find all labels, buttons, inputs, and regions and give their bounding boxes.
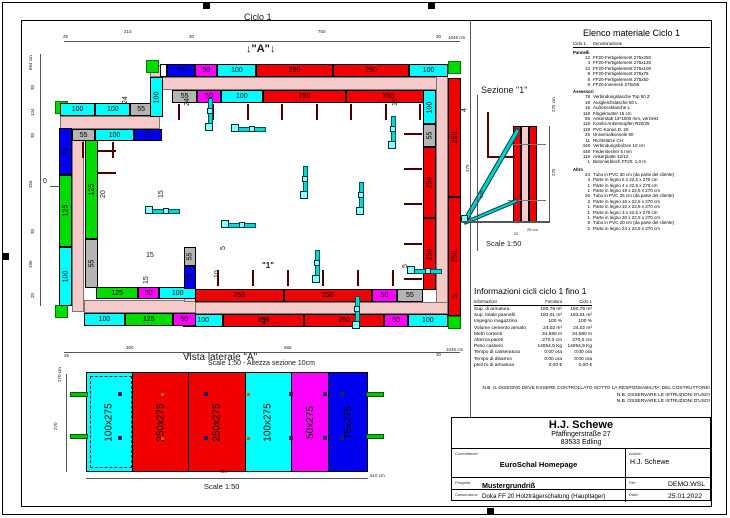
panel-size-label: 125 — [111, 290, 123, 297]
tie-rod-icon — [287, 270, 289, 286]
item-qty: 8 — [573, 82, 590, 87]
wall-band — [60, 116, 160, 129]
formwork-wall: 5575 — [184, 247, 196, 289]
casseratura-value: Doka FF 20 Holzträgerschalung (Hauptlage… — [482, 493, 605, 500]
tie-rod-icon — [247, 104, 249, 120]
panel-size-label: 250 — [365, 67, 377, 74]
prop-joint-icon — [239, 222, 245, 228]
panel-size-label: 50 — [180, 316, 188, 323]
joint-bolt-icon — [340, 392, 344, 396]
panel-100: 100 — [59, 247, 72, 306]
panel-50: 50 — [138, 287, 159, 299]
item-name: Parte in legno 24 x 22,5 x 270 cm — [590, 226, 660, 231]
notes: N.B. IL DISEGNO DEVE ESSERE CONTROLLATO … — [380, 386, 710, 406]
side-panel: 50x275 — [292, 373, 329, 471]
panel-250: 250 — [346, 90, 430, 103]
progetto-cell: Progetto: Mustergrundriß — [452, 478, 626, 489]
tie-rod-icon — [385, 104, 387, 120]
panel-size-label: 55 — [186, 253, 193, 261]
dimension-line — [66, 374, 67, 472]
print-mark — [487, 508, 494, 514]
joint-bolt-icon — [118, 436, 122, 440]
side-panel: 100x275 — [87, 373, 133, 471]
info-label: prezzo di armatura — [474, 363, 526, 369]
section-waling — [508, 144, 546, 145]
prop-joint-icon — [314, 260, 320, 266]
print-mark — [428, 3, 435, 9]
progetto-value: Mustergrundriß — [482, 481, 535, 490]
panel-125: 125 — [59, 175, 72, 247]
annotation-label: 22 — [514, 232, 518, 236]
committente-label: Committente: — [455, 451, 479, 456]
tie-rod-icon — [82, 142, 84, 158]
panel-250: 250 — [448, 197, 461, 316]
joint-bolt-icon — [204, 436, 208, 440]
formwork-wall: 10012550 — [84, 313, 196, 326]
panel-size-label: 100 — [99, 316, 111, 323]
panel-size-label: 250 — [289, 67, 301, 74]
prop-head-icon — [145, 206, 153, 214]
prop-head-icon — [205, 123, 213, 131]
prop-head-icon — [356, 207, 364, 215]
annotation-label: 30 — [189, 35, 194, 40]
dimension-line — [40, 54, 41, 306]
annotation-label: 24 — [184, 98, 191, 106]
annotation-label: 610 — [220, 470, 228, 475]
material-item: 1Betonierblech FF20, 1,0 m — [573, 159, 710, 164]
dimension-line — [64, 352, 460, 353]
annotation-label: 25 cm — [527, 228, 538, 232]
info-ciclo: 0,00 € — [562, 363, 592, 369]
info-row: prezzo di armatura0,00 €0,00 € — [474, 363, 592, 369]
tie-rod-icon — [404, 243, 422, 245]
corner-panel — [146, 60, 159, 73]
annotation-label: 30 — [31, 85, 36, 90]
dimension-line — [86, 478, 368, 479]
annotation-label: 30 — [436, 35, 441, 40]
panel-55: 55 — [184, 247, 196, 266]
panel-250: 250 — [256, 64, 332, 77]
panel-size-label: 250 — [451, 132, 458, 144]
panel-size-label: 75 — [144, 132, 152, 139]
file-label: File: — [629, 480, 637, 485]
panel-250: 250 — [333, 64, 409, 77]
committente-value: EuroSchal Homepage — [452, 460, 625, 469]
panel-size-label: 125 — [88, 184, 95, 196]
item-qty: 1 — [573, 159, 590, 164]
data-cell: Data: 25.01.2022 — [626, 490, 710, 502]
panel-75: 75 — [167, 64, 196, 77]
formwork-wall: 10055250250 — [423, 90, 436, 290]
annotation-label: 30 — [31, 133, 36, 138]
panel-size-label: 55 — [406, 292, 414, 299]
col-informazioni: Informazioni — [474, 299, 526, 304]
tie-rod-icon — [404, 203, 422, 205]
panel-size-label: 100 — [172, 290, 184, 297]
annotation-label: ↓"A"↓ — [246, 44, 275, 55]
company-street: Pfaffingerstraße 27 — [452, 431, 710, 439]
side-panel: 250x275 — [133, 373, 189, 471]
tie-rod-icon — [322, 270, 324, 286]
formwork-wall: 75125100 — [59, 128, 72, 306]
panel-50: 50 — [173, 313, 196, 326]
progetto-label: Progetto: — [455, 480, 471, 485]
side-panel-label: 250x275 — [212, 403, 223, 441]
annotation-label: Sezione "1" — [481, 86, 527, 95]
side-panel-label: 250x275 — [155, 403, 166, 441]
autore-cell: Autore: H.J. Schewe — [626, 449, 710, 477]
section-formwork-panel — [529, 126, 537, 222]
annotation-label: 20 — [100, 190, 107, 198]
formwork-wall: 10025025050100 — [183, 314, 448, 327]
panel-size-label: 100 — [423, 67, 435, 74]
annotation-label: 5 — [452, 294, 459, 298]
joint-bolt-icon — [323, 392, 327, 396]
lifting-handle-icon — [70, 434, 88, 439]
col-ciclo: Ciclo 1 — [573, 41, 593, 46]
annotation-label: 15 — [158, 190, 165, 198]
section-bracket — [487, 112, 489, 158]
prop-joint-icon — [302, 176, 308, 182]
joint-bolt-icon — [340, 436, 344, 440]
annotation-label: 1045 cm — [446, 348, 463, 353]
title-block: H.J. Schewe Pfaffingerstraße 27 83533 Ed… — [451, 417, 711, 501]
panel-250: 250 — [195, 289, 284, 302]
panel-100: 100 — [150, 77, 163, 117]
panel-75: 75 — [134, 129, 162, 141]
wall-band — [84, 300, 196, 313]
panel-size-label: 75 — [186, 274, 193, 282]
annotation-label: 4 — [461, 108, 468, 112]
panel-size-label: 250 — [338, 317, 350, 324]
file-value: DEMO.WSL — [668, 481, 705, 488]
prop-head-icon — [388, 141, 396, 149]
annotation-label: 300 — [126, 346, 134, 351]
panel-size-label: 250 — [233, 292, 245, 299]
tie-rod-icon — [281, 104, 283, 120]
col-denominazione: Denominazione — [593, 41, 622, 46]
wall-band — [150, 77, 448, 90]
side-panel-label: 100x275 — [104, 403, 115, 441]
panel-100: 100 — [95, 103, 130, 116]
joint-bolt-icon — [118, 392, 122, 396]
tie-rod-icon — [350, 104, 352, 120]
side-view: 100x275250x275250x275100x27550x27575x275 — [86, 372, 368, 472]
panel-100: 100 — [423, 90, 436, 124]
casseratura-label: Casseratura: — [455, 492, 478, 497]
print-mark — [203, 3, 210, 9]
panel-250: 250 — [304, 314, 385, 327]
panel-size-label: 50 — [145, 290, 153, 297]
prop-head-icon — [300, 191, 308, 199]
annotation-label: 15 — [146, 252, 154, 259]
joint-bolt-icon — [289, 436, 293, 440]
joint-bolt-icon — [204, 392, 208, 396]
joint-bolt-icon — [323, 436, 327, 440]
panel-50: 50 — [195, 64, 217, 77]
formwork-wall: 10010055 — [60, 103, 152, 116]
panel-100: 100 — [408, 314, 448, 327]
corner-panel — [448, 316, 461, 329]
panel-size-label: 100 — [72, 106, 84, 113]
annotation-label: 275 — [552, 168, 557, 176]
panel-50: 50 — [384, 314, 407, 327]
dimension-line — [477, 95, 478, 251]
item-name: Betonierblech FF20, 1,0 m — [590, 159, 646, 164]
autore-label: Autore: — [629, 451, 642, 456]
annotation-label: 196 — [29, 260, 34, 268]
panel-55: 55 — [85, 239, 98, 288]
anchor-dot-icon — [247, 393, 250, 396]
dimension-line — [64, 41, 460, 42]
annotation-label: "1" → — [258, 318, 280, 326]
side-panel-label: 75x275 — [343, 406, 354, 439]
wall-band — [436, 65, 448, 317]
annotation-label: 30 — [436, 353, 441, 358]
panel-100: 100 — [221, 90, 263, 103]
annotation-label: 134 — [31, 108, 36, 116]
annotation-label: 30 — [31, 229, 36, 234]
annotation-label: Scale 1:50 — [204, 483, 239, 491]
data-label: Data: — [629, 492, 639, 497]
section-wall — [521, 126, 529, 222]
formwork-wall: 100 — [150, 77, 163, 117]
formwork-wall: 5510075 — [72, 129, 162, 141]
annotation-label: 355 — [29, 180, 34, 188]
panel-size-label: 100 — [62, 270, 69, 282]
panel-250: 250 — [263, 90, 347, 103]
prop-head-icon — [312, 275, 320, 283]
company-name: H.J. Schewe — [452, 418, 710, 431]
tie-rod-icon — [357, 270, 359, 286]
panel-100: 100 — [95, 129, 133, 141]
annotation-label: 610 cm — [370, 474, 385, 479]
prop-joint-icon — [207, 108, 213, 114]
panel-size-label: 55 — [80, 132, 88, 139]
annotation-label: 25 — [63, 35, 68, 40]
panel-size-label: 250 — [426, 248, 433, 260]
annotation-label: 10 — [214, 270, 221, 278]
panel-size-label: 100 — [107, 106, 119, 113]
prop-head-icon — [231, 124, 239, 132]
annotation-label: 665 — [284, 346, 292, 351]
title-block-company: H.J. Schewe Pfaffingerstraße 27 83533 Ed… — [452, 418, 710, 449]
side-panel: 250x275 — [189, 373, 245, 471]
panel-size-label: 125 — [62, 205, 69, 217]
file-cell: File: DEMO.WSL — [626, 478, 710, 489]
annotation-label: 270 cm — [58, 367, 63, 382]
panel-100: 100 — [409, 64, 448, 77]
drawing-sheet: 100x275250x275250x275100x27550x27575x275… — [0, 0, 730, 518]
side-panel: 75x275 — [329, 373, 367, 471]
info-fornitura: 0,00 € — [526, 363, 562, 369]
panel-250: 250 — [423, 218, 436, 290]
annotation-label: 0 — [43, 178, 47, 185]
panel-size-label: 75 — [62, 147, 69, 155]
panel-size-label: 55 — [426, 132, 433, 140]
cycle-info-table: Informazioni cicli ciclo 1 fino 1 Inform… — [474, 286, 592, 369]
corner-panel — [55, 305, 68, 318]
panel-100: 100 — [217, 64, 256, 77]
annotation-label: 1045 cm — [448, 36, 465, 41]
prop-joint-icon — [249, 126, 255, 132]
item-name: FF20-Inneneck 275x55 — [590, 82, 639, 87]
tie-rod-icon — [98, 150, 116, 152]
formwork-wall: 12555 — [85, 140, 98, 288]
prop-joint-icon — [425, 268, 431, 274]
panel-size-label: 50 — [202, 67, 210, 74]
formwork-wall: 2502505055 — [195, 289, 423, 302]
tie-rod-icon — [404, 168, 422, 170]
tie-rod-icon — [98, 172, 116, 174]
panel-size-label: 250 — [451, 251, 458, 263]
annotation-label: 275 cm — [552, 97, 557, 112]
panel-size-label: 100 — [197, 317, 209, 324]
formwork-wall: 12550100 — [96, 287, 196, 299]
panel-size-label: 55 — [88, 260, 95, 268]
company-city: 83533 Edling — [452, 439, 710, 447]
panel-size-label: 75 — [177, 67, 185, 74]
material-list-header: Ciclo 1 Denominazione — [573, 41, 710, 48]
annotation-label: 24 — [122, 96, 129, 104]
tie-rod-icon — [252, 270, 254, 286]
note-line: N.B. OSSERVARE LE ISTRUZIONI D'USO! — [380, 399, 710, 406]
formwork-wall: 250250 — [448, 78, 461, 316]
panel-size-label: 50 — [380, 292, 388, 299]
info-header: Informazioni Fornitura Ciclo 1 — [474, 299, 592, 306]
info-title: Informazioni cicli ciclo 1 fino 1 — [474, 286, 592, 296]
casseratura-cell: Casseratura: Doka FF 20 Holzträgerschalu… — [452, 490, 626, 502]
annotation-label: 20 — [31, 293, 36, 298]
anchor-dot-icon — [161, 437, 164, 440]
annotation-label: 5 — [402, 264, 409, 268]
anchor-dot-icon — [247, 437, 250, 440]
panel-size-label: 55 — [137, 106, 145, 113]
prop-joint-icon — [358, 192, 364, 198]
panel-size-label: 100 — [153, 91, 160, 103]
tie-rod-icon — [316, 104, 318, 120]
annotation-label: 684 cm — [29, 55, 34, 70]
tie-rod-icon — [392, 270, 394, 286]
tie-rod-icon — [404, 278, 422, 280]
panel-100: 100 — [84, 313, 125, 326]
panel-size-label: 250 — [426, 177, 433, 189]
annotation-label: "1" — [262, 262, 274, 270]
panel-55: 55 — [397, 289, 423, 302]
annotation-label: Vista laterale "A" — [183, 353, 257, 363]
panel-55: 55 — [423, 124, 436, 147]
panel-55: 55 — [72, 129, 95, 141]
dimension-line — [470, 20, 471, 417]
annotation-label: 25 — [64, 354, 69, 359]
annotation-label: 210 — [124, 30, 132, 35]
anchor-dot-icon — [161, 393, 164, 396]
col-ciclo1: Ciclo 1 — [562, 299, 592, 304]
prop-joint-icon — [390, 126, 396, 132]
side-panel-label: 100x275 — [263, 403, 274, 441]
annotation-label: 5 — [220, 246, 227, 250]
panel-size-label: 100 — [109, 132, 121, 139]
corner-panel — [448, 61, 461, 74]
prop-joint-icon — [163, 208, 169, 214]
panel-55: 55 — [130, 103, 152, 116]
material-list-title: Elenco materiale Ciclo 1 — [583, 28, 710, 38]
panel-75: 75 — [59, 128, 72, 175]
panel-size-label: 125 — [143, 316, 155, 323]
dimension-line — [458, 221, 550, 223]
print-mark — [3, 253, 9, 260]
tie-rod-icon — [404, 133, 422, 135]
item-qty: 2 — [573, 226, 590, 231]
panel-125: 125 — [125, 313, 173, 326]
panel-75: 75 — [184, 266, 196, 289]
annotation-label: 270 — [466, 164, 471, 172]
joint-bolt-icon — [289, 392, 293, 396]
side-panel-label: 50x275 — [305, 406, 316, 439]
autore-value: H.J. Schewe — [630, 459, 669, 466]
annotation-label: 270 — [54, 422, 59, 430]
lifting-handle-icon — [70, 392, 88, 397]
lifting-handle-icon — [366, 392, 384, 397]
formwork-wall: 7550100250250100 — [160, 64, 448, 77]
panel-size-label: 50 — [392, 317, 400, 324]
material-item: 8FF20-Inneneck 275x55 — [573, 82, 710, 87]
prop-joint-icon — [354, 306, 360, 312]
lifting-handle-icon — [366, 434, 384, 439]
material-item: 2Parte in legno 24 x 22,5 x 270 cm — [573, 226, 710, 231]
panel-size-label: 250 — [322, 292, 334, 299]
annotation-label: 760 — [318, 30, 326, 35]
panel-125: 125 — [85, 140, 98, 239]
panel-size-label: 100 — [422, 317, 434, 324]
committente-cell: Committente: EuroSchal Homepage — [452, 449, 626, 477]
panel-size-label: 100 — [231, 67, 243, 74]
side-panel: 100x275 — [246, 373, 292, 471]
annotation-label: 629 — [480, 190, 485, 198]
tie-rod-icon — [178, 104, 180, 120]
prop-head-icon — [221, 220, 229, 228]
prop-head-icon — [352, 321, 360, 329]
data-value: 25.01.2022 — [668, 493, 702, 500]
panel-size-label: 100 — [236, 93, 248, 100]
panel-250: 250 — [448, 78, 461, 197]
panel-250: 250 — [423, 147, 436, 219]
annotation-label: Scale 1:50 — [486, 240, 521, 248]
tie-rod-icon — [419, 104, 421, 120]
panel-size-label: 100 — [426, 101, 433, 113]
col-fornitura: Fornitura — [526, 299, 562, 304]
wall-band — [183, 302, 448, 314]
panel-100: 100 — [60, 103, 95, 116]
dimension-line — [549, 126, 550, 222]
panel-125: 125 — [96, 287, 138, 299]
annotation-label: Ciclo 1 — [244, 13, 272, 22]
annotation-label: 19 — [392, 98, 399, 106]
material-list: Elenco materiale Ciclo 1 Ciclo 1 Denomin… — [573, 28, 710, 231]
panel-size-label: 250 — [299, 93, 311, 100]
annotation-label: 15 — [143, 276, 150, 284]
panel-50: 50 — [372, 289, 397, 302]
